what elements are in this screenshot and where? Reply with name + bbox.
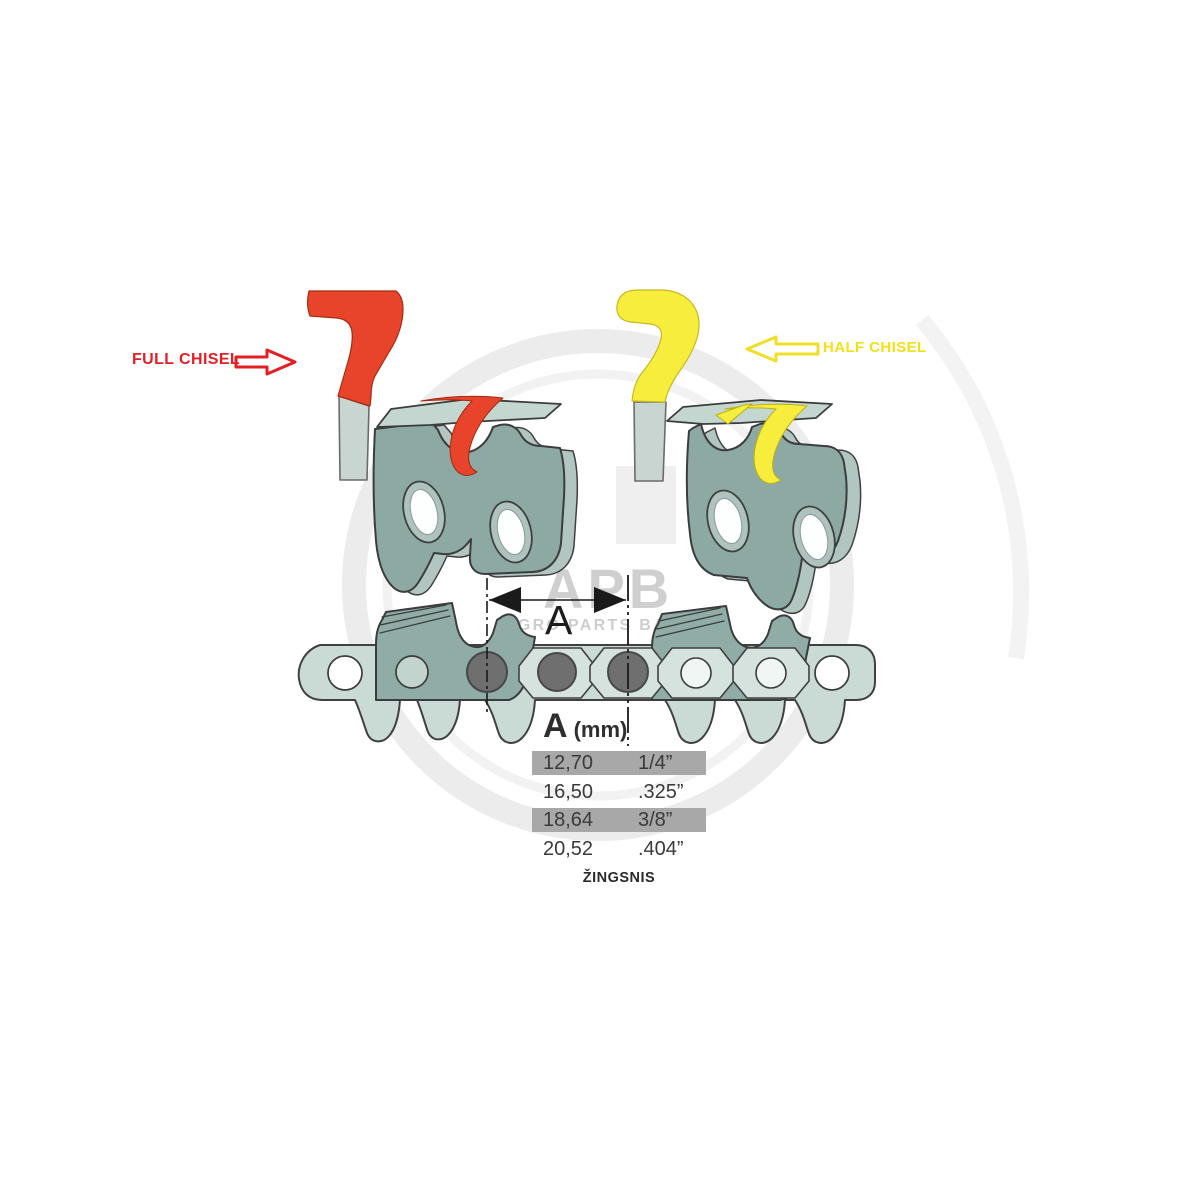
- chain-cutter-left: [376, 603, 535, 700]
- pitch-caption: ŽINGSNIS: [532, 870, 706, 886]
- full-chisel-profile-blade: [308, 291, 403, 406]
- pitch-table-header-unit: (mm): [574, 717, 628, 743]
- pitch-value-mm: 16,50: [543, 781, 638, 804]
- full-chisel-profile-foot: [339, 396, 369, 480]
- full-chisel-label: FULL CHISEL: [132, 351, 240, 369]
- half-chisel-profile-foot: [634, 402, 666, 481]
- half-chisel-arrow-icon: [747, 337, 818, 361]
- table-row: 16,50 .325”: [532, 778, 706, 807]
- table-row: 12,70 1/4”: [532, 749, 706, 778]
- full-chisel-cutter-link: [374, 396, 578, 595]
- pitch-value-inch: 1/4”: [638, 752, 704, 775]
- diagram-canvas: APB AGRO PARTS BALTIJA: [0, 0, 1188, 1188]
- table-row: 18,64 3/8”: [532, 806, 706, 835]
- chain-hole-light: [396, 656, 428, 688]
- chain-hex-hole-1: [681, 658, 711, 688]
- chain-rivet-2: [538, 653, 576, 691]
- pitch-value-inch: .325”: [638, 781, 704, 804]
- full-chisel-arrow-icon: [236, 350, 295, 374]
- half-chisel-label: HALF CHISEL: [823, 339, 927, 356]
- pitch-value-mm: 12,70: [543, 752, 638, 775]
- chain-hex-hole-2: [756, 658, 786, 688]
- pitch-value-mm: 20,52: [543, 838, 638, 861]
- pitch-table-header: A (mm): [532, 704, 706, 749]
- pitch-value-mm: 18,64: [543, 809, 638, 832]
- table-row: 20,52 .404”: [532, 835, 706, 864]
- pitch-value-inch: 3/8”: [638, 809, 704, 832]
- pitch-table-rows: 12,70 1/4” 16,50 .325” 18,64 3/8” 20,52 …: [532, 749, 706, 864]
- pitch-value-inch: .404”: [638, 838, 704, 861]
- chain-end-hole-right: [815, 656, 849, 690]
- pitch-table-header-letter: A: [543, 704, 568, 749]
- half-chisel-top-plate: [667, 400, 832, 424]
- chainsaw-chain-pitch-diagram: APB AGRO PARTS BALTIJA: [0, 0, 1188, 1188]
- pitch-table: A (mm) 12,70 1/4” 16,50 .325” 18,64 3/8”…: [532, 704, 706, 886]
- dimension-arrowhead-left: [489, 587, 521, 613]
- pitch-dimension-letter: A: [545, 597, 572, 644]
- chain-end-hole-left: [328, 656, 362, 690]
